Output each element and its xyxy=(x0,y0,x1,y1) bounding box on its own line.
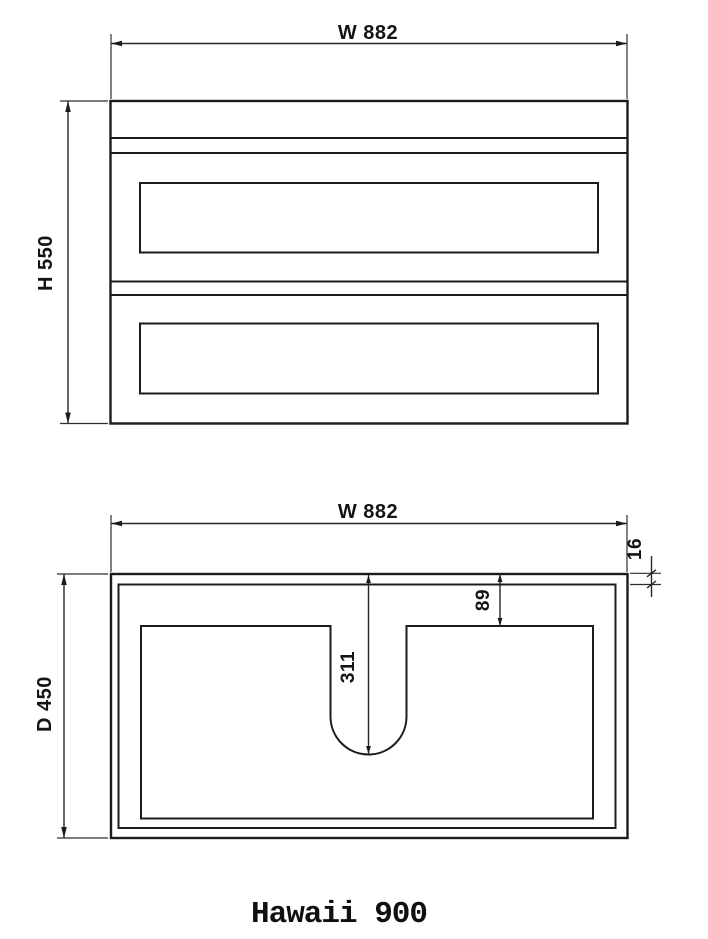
arrowhead xyxy=(366,746,371,754)
arrowhead xyxy=(616,41,627,47)
front-width-label: W 882 xyxy=(338,22,398,44)
basin-depth-label: 311 xyxy=(338,651,359,683)
basin-offset-dimension: 89 xyxy=(473,574,502,626)
lower-drawer-panel xyxy=(140,324,598,394)
front-height-label: H 550 xyxy=(35,235,57,291)
top-thickness-label: 16 xyxy=(625,538,646,560)
drawer-box-with-basin-cutout xyxy=(141,626,593,819)
upper-drawer-panel xyxy=(140,183,598,253)
vanity-technical-drawing: W 882 H 550 xyxy=(0,0,708,939)
arrowhead xyxy=(498,618,503,626)
arrowhead xyxy=(111,521,122,527)
plan-view: W 882 D 450 16 xyxy=(34,501,661,838)
basin-offset-label: 89 xyxy=(473,589,494,611)
front-height-dimension: H 550 xyxy=(35,101,108,424)
arrowhead xyxy=(111,41,122,47)
plan-depth-dimension: D 450 xyxy=(34,574,108,838)
arrowhead xyxy=(65,101,71,112)
arrowhead xyxy=(61,574,67,585)
front-elevation-view: W 882 H 550 xyxy=(35,22,628,424)
plan-width-dimension: W 882 xyxy=(111,501,627,572)
basin-depth-dimension: 311 xyxy=(338,575,371,754)
arrowhead xyxy=(61,827,67,838)
plan-outline xyxy=(111,574,628,838)
arrowhead xyxy=(65,413,71,424)
arrowhead xyxy=(498,574,503,582)
arrowhead xyxy=(366,575,371,583)
plan-inner-panel-outline xyxy=(119,585,616,829)
plan-depth-label: D 450 xyxy=(34,676,56,732)
top-thickness-dimension: 16 xyxy=(625,538,661,597)
front-width-dimension: W 882 xyxy=(111,22,627,99)
cabinet-outline xyxy=(111,101,628,424)
model-caption: Hawaii 900 xyxy=(251,897,427,932)
arrowhead xyxy=(616,521,627,527)
plan-width-label: W 882 xyxy=(338,501,398,523)
drawing-page: W 882 H 550 xyxy=(0,0,708,939)
